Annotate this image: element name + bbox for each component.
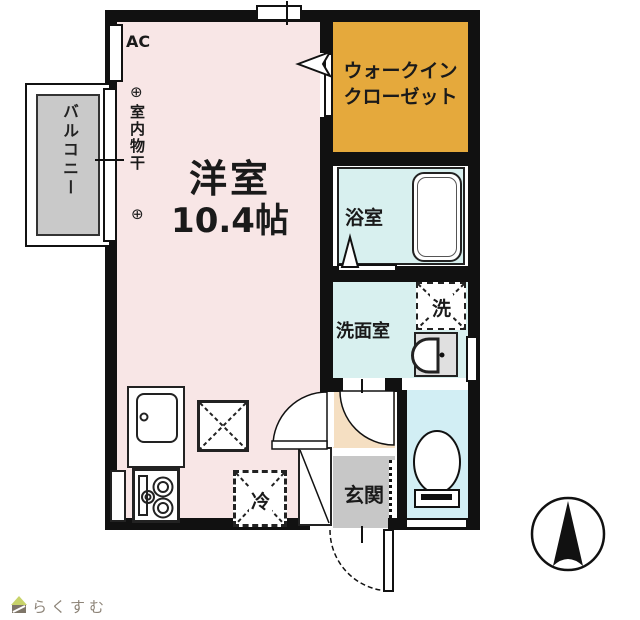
hall-door-gap [343,378,385,392]
top-window [256,5,302,21]
washer-label: 洗 [430,294,453,321]
fridge-label: 冷 [249,487,272,514]
main-room-size: 10.4帖 [140,193,320,242]
wall-washroom-hall-left [333,378,343,392]
shoe-cabinet [298,447,332,526]
balcony-label: バルコニー [57,103,81,198]
entrance-label: 玄関 [336,479,392,508]
wic-label-line2: クローゼット [338,82,463,109]
wic-label-line1: ウォークイン [338,56,463,83]
bathtub-inner-line [417,177,457,257]
vanity-sink-unit [414,332,458,377]
drying-mark-top: ⊕ [130,83,143,101]
wall-below-wic [333,152,468,166]
washroom-label: 洗面室 [336,317,390,343]
bathroom-label: 浴室 [345,203,383,230]
entrance-step-strip [333,448,395,456]
wall-toilet-left [397,390,407,518]
room-toilet [407,390,468,518]
hatch-box [197,400,249,452]
ac-unit [108,24,123,82]
ac-label: AC [126,32,150,51]
pipe-space [110,470,126,522]
kitchen-stove [132,468,180,523]
floorplan-canvas: AC ⊕ 室内物干 ⊕ 洋室 10.4帖 ウォークイン クローゼット 浴室 洗 … [0,0,640,620]
room-hall [333,391,395,448]
washroom-window [466,336,478,382]
wall-right [468,10,480,530]
balcony-window [103,88,117,242]
wic-door-panel [324,53,333,117]
entrance-door-icon [330,526,393,591]
bathroom-door-strip [337,264,397,272]
logo-house-icon [11,596,27,613]
kitchen-sink [136,393,178,443]
logo-text: らくすむ [32,596,108,617]
compass-north-icon [532,498,604,570]
main-door-gap [318,392,334,447]
toilet-bottom-strip [407,520,466,527]
